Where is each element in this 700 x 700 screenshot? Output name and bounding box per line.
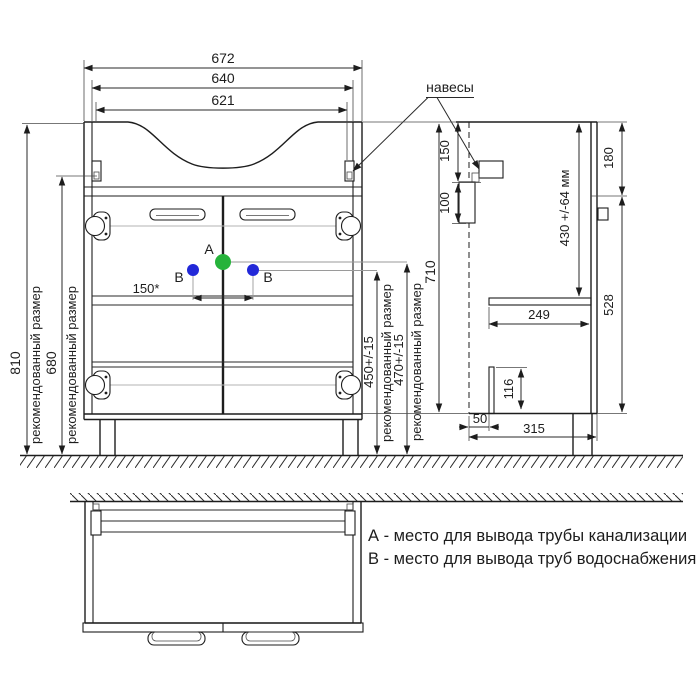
hanger-right	[345, 161, 354, 181]
hinge-top-right	[336, 212, 361, 240]
dim-width-body: 640	[211, 70, 235, 86]
plan-handle-left	[148, 632, 205, 645]
hinge-bottom-right	[336, 371, 361, 399]
side-shelf	[489, 298, 591, 305]
legend: А - место для вывода трубы канализации В…	[368, 527, 696, 568]
side-back-panel	[489, 367, 494, 414]
dim-back-panel: 116	[501, 379, 516, 400]
dim-height-overall: 810	[7, 351, 23, 375]
technical-drawing-page: A B B 150* 672 640 621 навесы 810 рекоме…	[0, 0, 700, 700]
dim-height-cabinet: 710	[422, 260, 438, 284]
dim-water-spacing: 150*	[133, 281, 160, 296]
plan-view	[83, 502, 363, 646]
dim-rail-height: 100	[437, 192, 452, 214]
dim-depth-total: 315	[523, 421, 545, 436]
dim-height-hangers: 680	[43, 351, 59, 375]
dim-height-drain-note: рекомендованный размер	[409, 283, 424, 441]
label-point-a: A	[204, 241, 214, 257]
sewage-outlet-marker-a	[215, 254, 231, 270]
right-height-dimensions: 450+/-15 рекомендованный размер 470+/-15…	[361, 124, 439, 454]
hanger-left	[92, 161, 101, 181]
dim-height-hangers-note: рекомендованный размер	[64, 286, 79, 444]
front-view: A B B 150*	[84, 122, 407, 455]
dim-height-drain: 470+/-15	[391, 334, 406, 386]
ground-line	[20, 456, 683, 469]
dim-back-offset: 50	[473, 411, 487, 426]
hangers-callout: навесы	[353, 79, 479, 171]
dim-shelf-depth: 249	[528, 307, 550, 322]
side-wall-rail	[459, 182, 475, 223]
dim-hanger-offset: 150	[437, 140, 452, 162]
side-hanger	[479, 161, 503, 178]
sink-cutout-profile	[84, 122, 362, 168]
dim-door-height: 528	[601, 294, 616, 316]
plan-handle-right	[242, 632, 299, 645]
dim-drain-depth: 430 +/-64 мм	[557, 170, 572, 247]
hangers-callout-label: навесы	[426, 79, 474, 95]
side-hinge-block	[598, 208, 608, 220]
dim-height-overall-note: рекомендованный размер	[28, 286, 43, 444]
front-width-dimensions: 672 640 621	[84, 50, 362, 160]
dim-height-water: 450+/-15	[361, 336, 376, 388]
hinge-top-left	[86, 212, 111, 240]
side-view: 150 100 430 +/-64 мм 180 528 249 116 50 …	[362, 122, 627, 455]
label-point-b-right: B	[263, 269, 272, 285]
legend-line-a: А - место для вывода трубы канализации	[368, 527, 687, 545]
legend-line-b: В - место для вывода труб водоснабжения	[368, 550, 696, 568]
water-outlet-marker-b-right	[247, 264, 259, 276]
dim-width-cutout: 621	[211, 92, 235, 108]
handle-left-door	[150, 209, 205, 220]
front-legs	[100, 420, 358, 456]
water-outlet-marker-b-left	[187, 264, 199, 276]
dim-width-overall: 672	[211, 50, 235, 66]
dim-top-section: 180	[601, 147, 616, 169]
vanity-dimension-drawing: A B B 150* 672 640 621 навесы 810 рекоме…	[0, 0, 700, 700]
handle-right-door	[240, 209, 295, 220]
wall-line-plan	[70, 493, 683, 502]
hinge-bottom-left	[86, 371, 111, 399]
label-point-b-left: B	[174, 269, 183, 285]
